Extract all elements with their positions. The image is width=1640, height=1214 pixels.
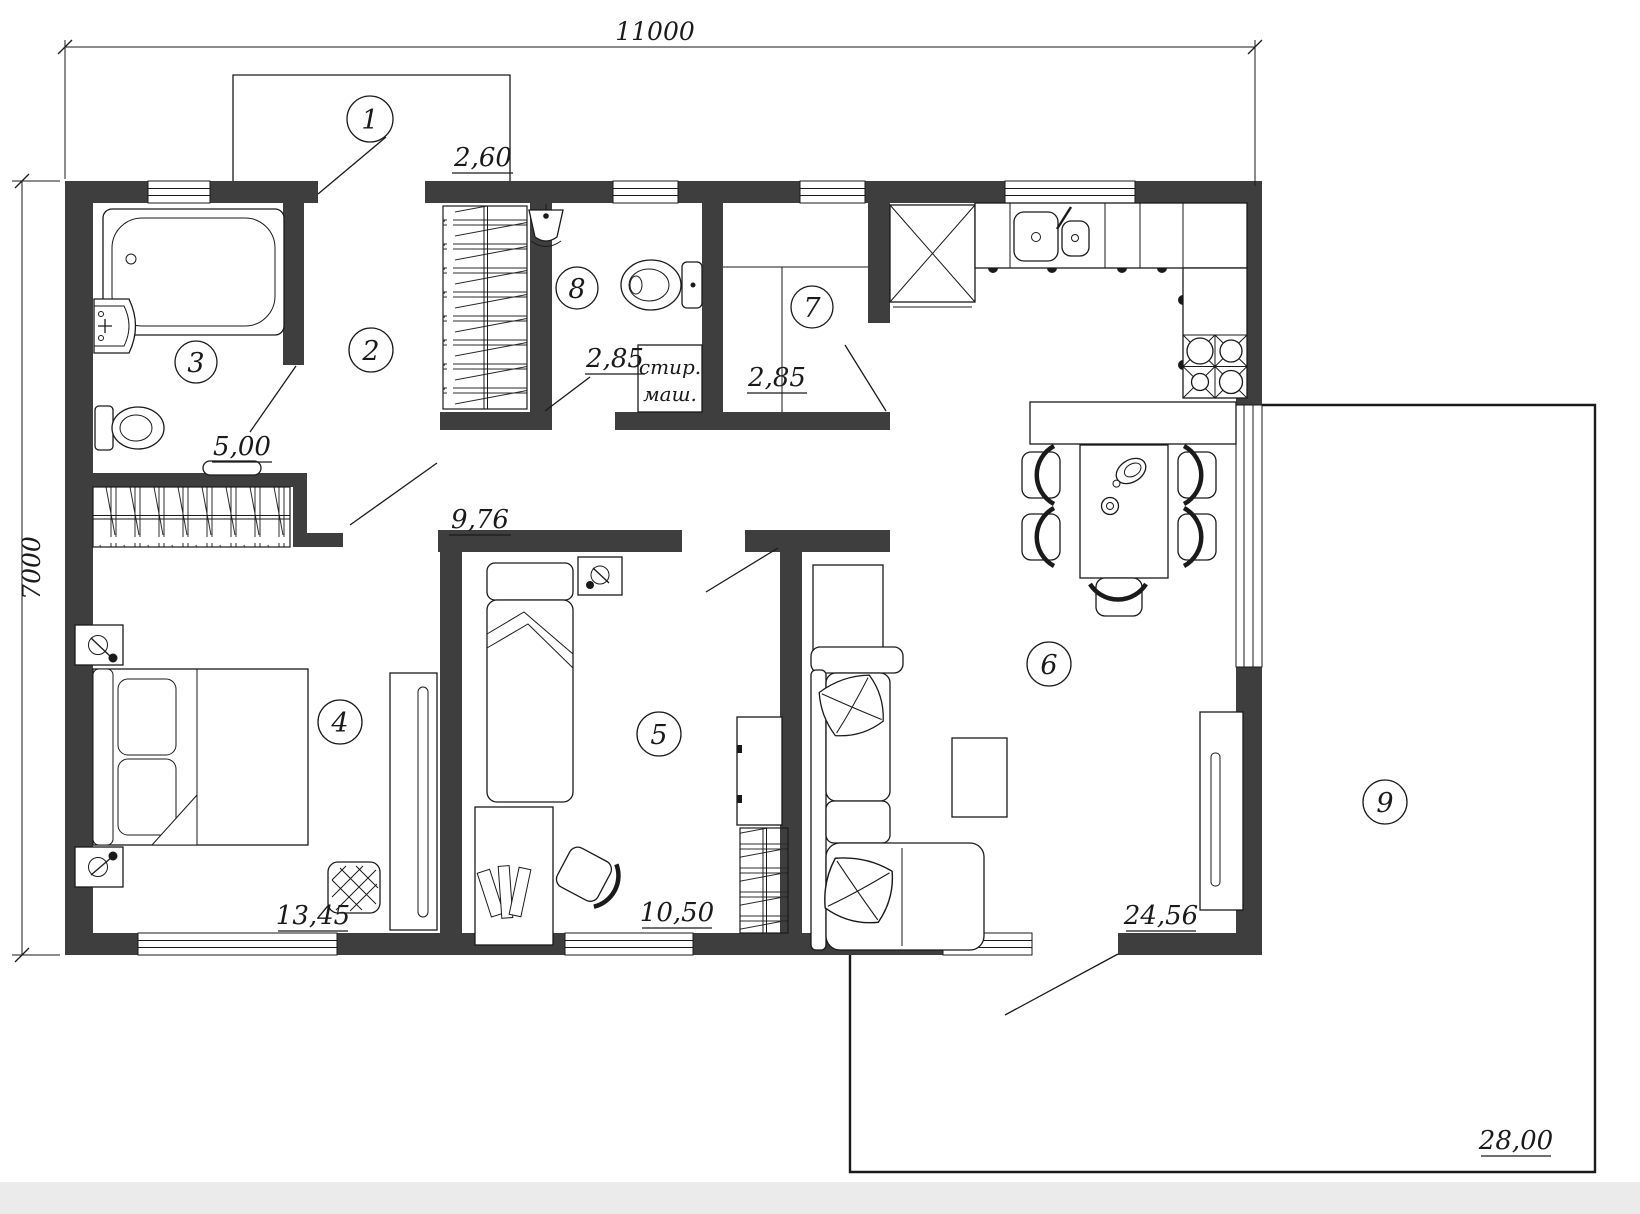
room-badge-7: 7: [791, 286, 833, 328]
nightstand-symbol: [75, 847, 123, 887]
svg-text:2,60: 2,60: [453, 143, 512, 173]
room-number: 4: [330, 708, 348, 739]
area-label-room2: 9,76: [449, 505, 511, 535]
cup-symbol: [1102, 498, 1119, 515]
room-badge-3: 3: [175, 341, 217, 383]
chair-symbol: [1178, 446, 1216, 504]
svg-text:2,85: 2,85: [747, 363, 806, 393]
dimension-left-value: 7000: [17, 536, 46, 600]
room-number: 7: [803, 293, 821, 324]
window: [148, 181, 210, 203]
svg-text:13,45: 13,45: [276, 901, 350, 931]
bedroom5-wardrobe-symbol: [740, 828, 788, 933]
area-label-room8: 2,85: [585, 344, 645, 374]
room-badge-8: 8: [556, 267, 598, 309]
window: [565, 933, 693, 955]
window: [1236, 405, 1262, 667]
room-badge-5: 5: [637, 712, 681, 756]
stove-symbol: [1183, 335, 1247, 398]
room-number: 8: [568, 274, 585, 305]
wardrobe-symbol: [390, 673, 437, 930]
room-number: 1: [361, 105, 378, 136]
area-label-room5: 10,50: [640, 898, 714, 928]
washer-label-line2: маш.: [643, 382, 697, 406]
coffee-table-symbol: [952, 738, 1007, 817]
room-badge-1: 1: [347, 96, 393, 142]
area-label-room4: 13,45: [276, 901, 350, 931]
nightstand-symbol: [578, 557, 622, 595]
room-number: 3: [187, 348, 204, 379]
area-label-room7: 2,85: [747, 363, 807, 393]
towel-rail-symbol: [203, 461, 261, 475]
bedroom4-top-wardrobe-symbol: [93, 487, 290, 547]
chair-symbol: [1178, 508, 1216, 566]
washbasin-symbol: [94, 299, 136, 353]
svg-text:2,85: 2,85: [585, 344, 644, 374]
floor-plan-page: стир. маш.: [0, 0, 1640, 1214]
area-label-room3: 5,00: [212, 432, 272, 462]
svg-text:10,50: 10,50: [640, 898, 714, 928]
toilet-symbol: [621, 260, 702, 310]
corner-cabinet-symbol: [813, 565, 883, 660]
svg-text:5,00: 5,00: [213, 432, 271, 462]
room-badge-2: 2: [349, 328, 393, 372]
floor-plan-canvas: стир. маш.: [0, 0, 1640, 1214]
hall-closet-symbol: [443, 206, 527, 409]
double-bed-symbol: [93, 669, 308, 845]
room-number: 9: [1376, 788, 1393, 819]
washer-label-line1: стир.: [639, 355, 701, 379]
window: [1005, 181, 1135, 203]
room-number: 2: [361, 336, 379, 367]
room-badge-4: 4: [318, 700, 362, 744]
bottom-strip: [0, 1182, 1640, 1214]
room-badge-9: 9: [1363, 780, 1407, 824]
dimension-top-value: 11000: [615, 17, 695, 46]
dresser-symbol: [737, 717, 782, 825]
svg-text:24,56: 24,56: [1123, 901, 1198, 931]
single-bed-symbol: [487, 563, 573, 802]
area-label-room9: 28,00: [1478, 1126, 1553, 1156]
chair-symbol: [1090, 578, 1146, 616]
svg-text:28,00: 28,00: [1478, 1126, 1553, 1156]
desk-symbol: [475, 807, 553, 945]
room-number: 6: [1040, 650, 1057, 681]
tv-console-symbol: [1200, 712, 1243, 910]
washing-machine-symbol: стир. маш.: [638, 345, 702, 412]
window: [138, 933, 337, 955]
bar-counter-symbol: [1030, 402, 1236, 444]
fridge-symbol: [890, 205, 975, 307]
room-badge-6: 6: [1027, 642, 1071, 686]
window: [613, 181, 678, 203]
chair-symbol: [1022, 508, 1060, 566]
window: [800, 181, 865, 203]
svg-text:9,76: 9,76: [451, 505, 509, 535]
room-number: 5: [650, 720, 667, 751]
chair-symbol: [1022, 446, 1060, 504]
area-label-closet: 2,60: [452, 143, 513, 173]
area-label-room6: 24,56: [1123, 901, 1198, 931]
toilet-symbol: [95, 406, 164, 450]
tv-symbol: [1211, 753, 1220, 886]
nightstand-symbol: [75, 625, 123, 665]
